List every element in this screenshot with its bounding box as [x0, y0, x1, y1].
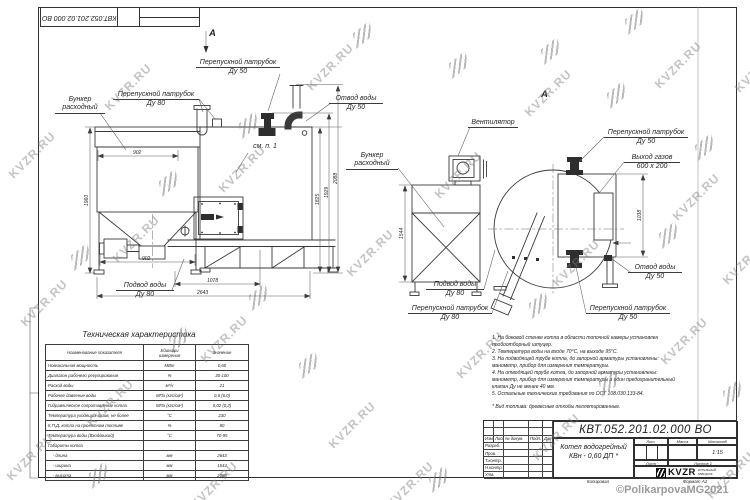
sig-cell: Т.контр. [484, 457, 504, 464]
spec-cell: Номинальная мощность [46, 361, 144, 371]
spec-cell: 30-100 [196, 371, 249, 381]
sig-cell [504, 443, 529, 450]
mass-header: Масса [668, 438, 697, 445]
label-see-item-1: см. п. 1 [243, 143, 287, 151]
sig-cell [494, 428, 504, 435]
sig-cell [484, 428, 494, 435]
label-gas-outlet: Выход газов 600 х 200 [624, 154, 680, 172]
sig-cell [543, 443, 553, 450]
spec-cell: 2088 [196, 471, 249, 481]
fittings-filled [201, 46, 612, 268]
dim-base-length: 1078 [207, 278, 218, 284]
kvzr-logo-text: KVZR [668, 467, 696, 478]
spec-cell: % [144, 421, 196, 431]
label-line: Ду 80 [116, 291, 174, 299]
sig-cell [543, 472, 553, 479]
sig-cell [543, 465, 553, 472]
spec-cell: мм [144, 461, 196, 471]
label-line: Ду 50 [604, 138, 688, 146]
sig-cell [484, 421, 494, 428]
dim-height-left: 1960 [84, 195, 90, 206]
spec-cell: 0,60 [196, 361, 249, 371]
label-line: Ду 50 [196, 68, 280, 76]
label-water-outlet-front: Отвод воды Ду 50 [329, 95, 383, 113]
spec-row: - ширинамм1544 [46, 461, 249, 471]
spec-row: Габариты котла [46, 441, 249, 451]
sig-cell: Лист [494, 436, 504, 443]
sig-cell [529, 450, 543, 457]
spec-cell: мм [144, 471, 196, 481]
label-line: Подвод воды [116, 282, 174, 291]
spec-cell: 0,6 (6,0) [196, 391, 249, 401]
kvzr-logo-subtext: КОТЕЛЬНЫЙ ЗАВОД РФ [698, 469, 716, 476]
top-stamp: КВТ.052.201.02.000 ВО [40, 7, 200, 27]
label-fan: Вентилятор [468, 119, 518, 128]
spec-cell: 70-95 [196, 431, 249, 441]
label-line: Перепускной патрубок [113, 91, 199, 100]
spec-col-value: Значение [196, 345, 249, 361]
label-bunker-side: Бункер расходный [346, 152, 398, 170]
spec-cell: °С [144, 411, 196, 421]
label-bypass-du50-bottom-side: Перепускной патрубок Ду 50 [586, 305, 670, 323]
title-block: Изм.Лист№ докум.Подп.ДатаРазраб.Пров.Т.к… [483, 420, 737, 478]
sig-cell [529, 457, 543, 464]
spec-cell: °С [144, 431, 196, 441]
dim-h-body: 1825 [315, 194, 321, 205]
label-line: Бункер [55, 96, 105, 104]
lit-header: Лит. [634, 438, 668, 445]
sig-cell [529, 443, 543, 450]
stamp-empty-cell [118, 7, 140, 27]
sig-cell [504, 472, 529, 479]
dim-legs-span: 902 [142, 256, 150, 262]
sig-cell [504, 465, 529, 472]
stamp-doc-number: КВТ.052.201.02.000 ВО [42, 14, 117, 21]
label-line: Ду 50 [628, 273, 682, 281]
dim-total-length: 2643 [197, 290, 208, 296]
dim-bunker-width: 902 [133, 150, 141, 156]
spec-row: Номинальная мощностьМВт0,60 [46, 361, 249, 371]
spec-cell: Гидравлическое сопротивление котла [46, 401, 144, 411]
lit-cells [634, 445, 668, 460]
spec-table-body: Номинальная мощностьМВт0,60Диапазон рабо… [46, 361, 249, 481]
spec-cell: 21 [196, 381, 249, 391]
sig-cell [529, 421, 543, 428]
spec-col-name: Наименование показателя [46, 345, 144, 361]
spec-row: Рабочее давление водыМПа (кгс/см²)0,6 (6… [46, 391, 249, 401]
spec-cell: Диапазон рабочего регулирования [46, 371, 144, 381]
fuel-note: * Вид топлива: древесные отходы пеллетир… [492, 404, 706, 411]
sig-cell [504, 450, 529, 457]
scale-value: 1:15 [697, 445, 738, 460]
spec-cell: Габариты котла [46, 441, 144, 451]
label-line: Отвод воды [329, 95, 383, 104]
stamp-doc-cell: КВТ.052.201.02.000 ВО [40, 7, 118, 27]
front-view-outline [94, 86, 338, 275]
sig-cell [529, 472, 543, 479]
label-bypass-du80-front: Перепускной патрубок Ду 80 [113, 91, 199, 109]
dim-gas-duct-height: 1038 [637, 210, 643, 221]
label-line: Ду 80 [426, 290, 484, 298]
label-line: 600 х 200 [624, 163, 680, 171]
label-line: расходный [55, 104, 105, 113]
label-bypass-du50-top-side: Перепускной патрубок Ду 50 [604, 129, 688, 147]
spec-cell: м³/ч [144, 381, 196, 391]
spec-cell: Температура уходящих газов, не более [46, 411, 144, 421]
sig-cell [543, 428, 553, 435]
spec-cell: мм [144, 451, 196, 461]
mass-cell [668, 445, 697, 460]
sig-cell [504, 421, 529, 428]
spec-table: Наименование показателя Единицы измерени… [45, 344, 249, 481]
dim-side-width: 1544 [399, 228, 405, 239]
spec-cell [144, 441, 196, 451]
copyright-watermark: ©PolikarpovaMG2021 [616, 484, 729, 496]
sig-cell: Утв. [484, 472, 504, 479]
label-line: Отвод воды [628, 264, 682, 273]
dim-h-nozzle: 1929 [324, 187, 330, 198]
spec-cell: Рабочее давление воды [46, 391, 144, 401]
spec-cell: 1544 [196, 461, 249, 471]
spec-cell: 80 [196, 421, 249, 431]
spec-row: Гидравлическое сопротивление котлаМПа (к… [46, 401, 249, 411]
label-line: Ду 80 [408, 314, 492, 322]
sig-cell: Дата [543, 436, 553, 443]
spec-row: Диапазон рабочего регулирования%30-100 [46, 371, 249, 381]
label-line: Выход газов [624, 154, 680, 163]
drawing-sheet: А А Бункер расходный Перепускной патрубо… [0, 0, 750, 500]
spec-cell: Расход воды [46, 381, 144, 391]
product-name-line: Котел водогрейный [560, 443, 627, 452]
spec-cell [196, 441, 249, 451]
sig-cell [504, 457, 529, 464]
label-water-inlet-side: Подвод воды Ду 80 [426, 281, 484, 299]
spec-cell: МПа (кгс/см²) [144, 401, 196, 411]
scale-header: Масштаб [697, 438, 738, 445]
spec-table-title: Техническая характеристика [45, 330, 233, 339]
label-water-inlet-front: Подвод воды Ду 80 [116, 282, 174, 300]
label-line: см. п. 1 [243, 143, 287, 151]
dim-h-total: 2088 [333, 173, 339, 184]
view-arrow-label-front: А [209, 28, 216, 39]
sig-cell: Пров. [484, 450, 504, 457]
label-line: расходный [346, 160, 398, 169]
sig-cell: Разраб. [484, 443, 504, 450]
sig-cell [504, 428, 529, 435]
spec-cell: 2643 [196, 451, 249, 461]
label-water-outlet-side: Отвод воды Ду 50 [628, 264, 682, 282]
label-bunker-front: Бункер расходный [55, 96, 105, 114]
spec-cell: % [144, 371, 196, 381]
view-label-side: А [541, 89, 548, 100]
stamp-split-cell [140, 7, 200, 27]
label-line: Подвод воды [426, 281, 484, 290]
label-line: Ду 50 [586, 314, 670, 322]
sig-cell [529, 465, 543, 472]
spec-cell: 230 [196, 411, 249, 421]
sig-cell: Подп. [529, 436, 543, 443]
sig-cell: Изм. [484, 436, 494, 443]
sig-cell [529, 428, 543, 435]
spec-cell: - ширина [46, 461, 144, 471]
kvzr-logo-icon [656, 468, 666, 478]
spec-cell: К.П.Д. котла на проектном топливе [46, 421, 144, 431]
label-bypass-du50-front: Перепускной патрубок Ду 50 [196, 59, 280, 77]
signature-block: Изм.Лист№ докум.Подп.ДатаРазраб.Пров.Т.к… [484, 421, 553, 479]
product-name-line: КВн - 0,60 ДП * [569, 452, 618, 461]
spec-row: Температура воды (Вход/выход)°С70-95 [46, 431, 249, 441]
logo-cell: KVZR КОТЕЛЬНЫЙ ЗАВОД РФ [634, 466, 738, 479]
product-name: Котел водогрейный КВн - 0,60 ДП * [553, 438, 634, 479]
doc-number: КВТ.052.201.02.000 ВО [553, 421, 738, 438]
spec-header-row: Наименование показателя Единицы измерени… [46, 345, 249, 361]
label-line: Ду 80 [113, 100, 199, 108]
spec-cell: - длина [46, 451, 144, 461]
spec-row: Температура уходящих газов, не более°С23… [46, 411, 249, 421]
spec-row: Расход водым³/ч21 [46, 381, 249, 391]
spec-row: - длинамм2643 [46, 451, 249, 461]
label-line: Вентилятор [468, 119, 518, 128]
spec-row: К.П.Д. котла на проектном топливе%80 [46, 421, 249, 431]
spec-row: - высотамм2088 [46, 471, 249, 481]
technical-notes: 1. На боковой стенке котла в области топ… [492, 335, 706, 398]
label-bypass-du80-side: Перепускной патрубок Ду 80 [408, 305, 492, 323]
spec-cell: МВт [144, 361, 196, 371]
label-line: Ду 50 [329, 104, 383, 112]
label-line: Бункер [346, 152, 398, 160]
label-line: Перепускной патрубок [586, 305, 670, 314]
sig-cell: № докум. [504, 436, 529, 443]
label-line: Перепускной патрубок [196, 59, 280, 68]
spec-cell: МПа (кгс/см²) [144, 391, 196, 401]
spec-col-units: Единицы измерения [144, 345, 196, 361]
sig-cell [494, 421, 504, 428]
spec-cell: 0,02 (0,2) [196, 401, 249, 411]
label-line: Перепускной патрубок [604, 129, 688, 138]
sig-cell [543, 421, 553, 428]
sig-cell [543, 457, 553, 464]
sig-cell: Н.контр. [484, 465, 504, 472]
spec-cell: - высота [46, 471, 144, 481]
sig-cell [543, 450, 553, 457]
label-line: Перепускной патрубок [408, 305, 492, 314]
spec-cell: Температура воды (Вход/выход) [46, 431, 144, 441]
